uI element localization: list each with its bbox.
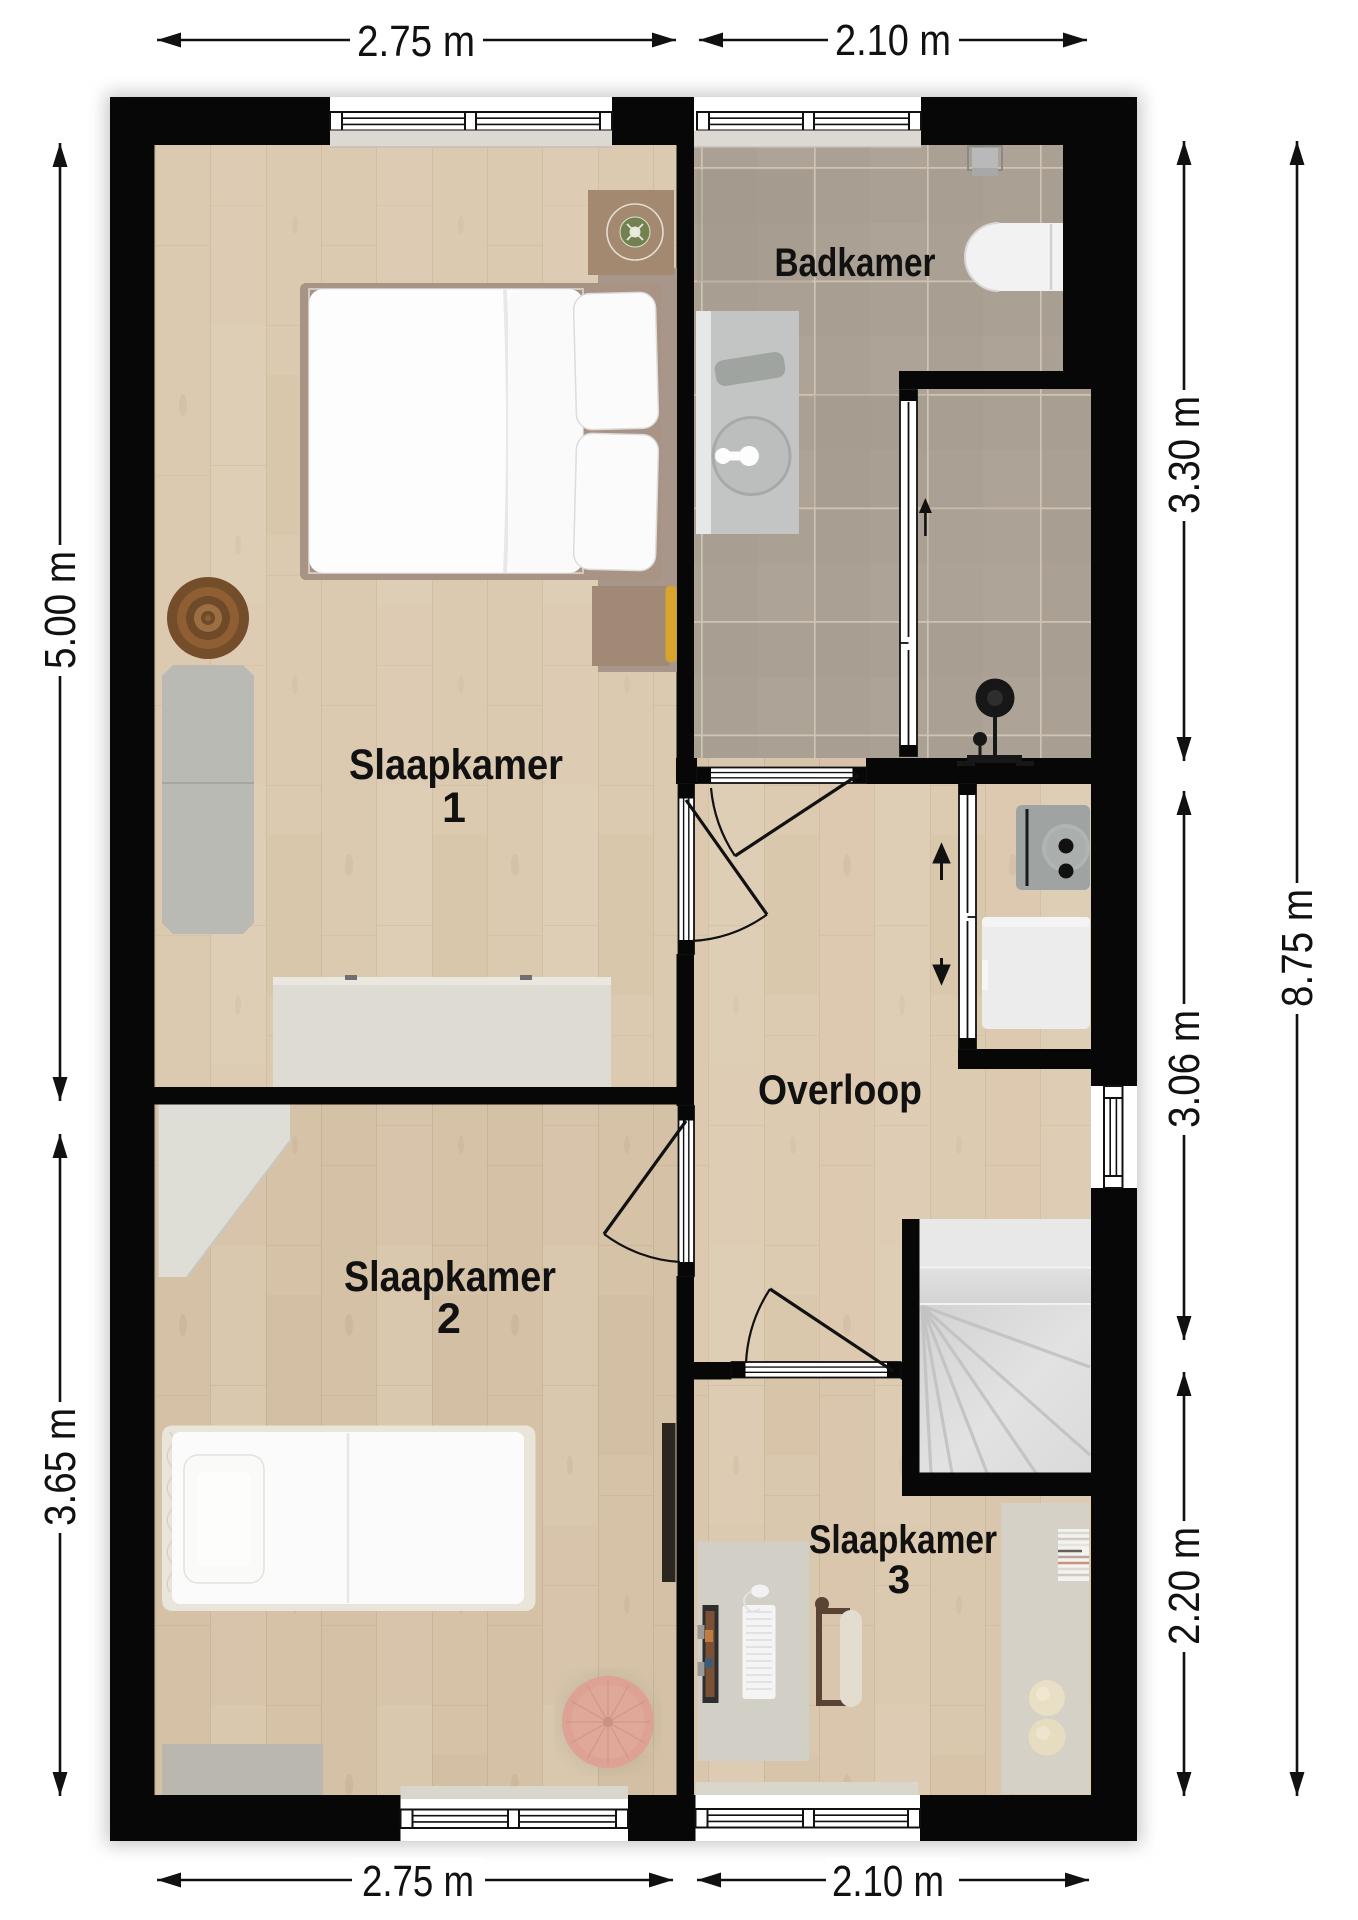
svg-text:Overloop: Overloop: [758, 1066, 922, 1113]
svg-text:3.65 m: 3.65 m: [36, 1408, 85, 1526]
svg-text:3: 3: [888, 1558, 910, 1602]
svg-text:Slaapkamer: Slaapkamer: [809, 1518, 997, 1562]
svg-text:2.10 m: 2.10 m: [832, 1857, 944, 1906]
svg-text:2: 2: [437, 1295, 461, 1343]
svg-text:2.10 m: 2.10 m: [835, 16, 951, 65]
svg-text:5.00 m: 5.00 m: [36, 551, 85, 669]
svg-text:3.06 m: 3.06 m: [1160, 1010, 1209, 1128]
svg-text:Slaapkamer: Slaapkamer: [349, 741, 563, 789]
svg-text:3.30 m: 3.30 m: [1160, 396, 1209, 514]
svg-text:1: 1: [442, 784, 466, 832]
svg-text:2.75 m: 2.75 m: [357, 17, 475, 66]
svg-text:8.75 m: 8.75 m: [1273, 889, 1322, 1007]
svg-text:2.75 m: 2.75 m: [362, 1857, 474, 1906]
svg-text:Slaapkamer: Slaapkamer: [344, 1253, 556, 1301]
svg-text:Badkamer: Badkamer: [775, 241, 936, 285]
svg-text:2.20 m: 2.20 m: [1160, 1527, 1209, 1645]
